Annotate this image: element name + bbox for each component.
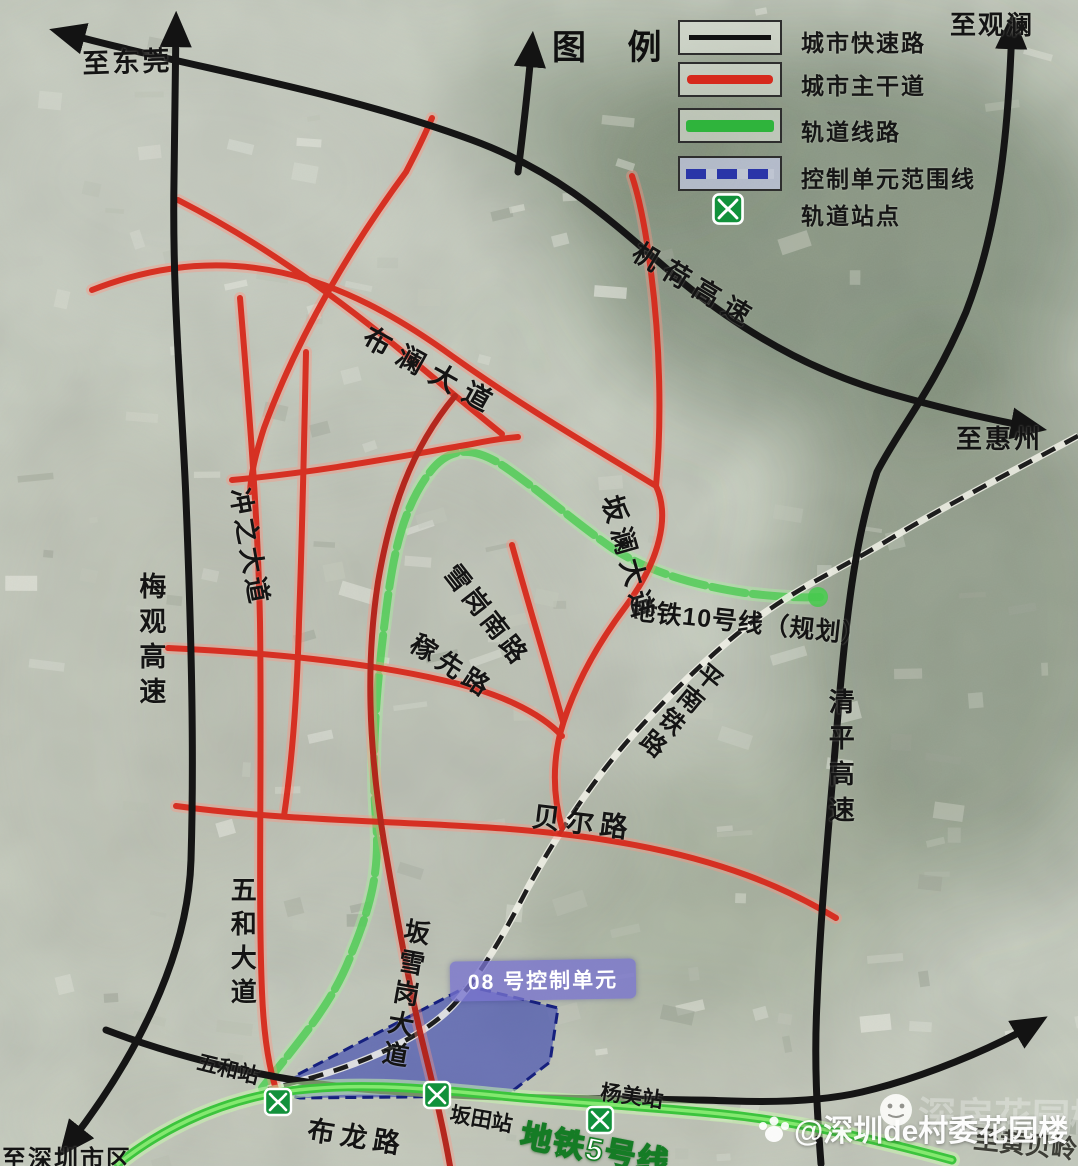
dest-guanlan: 至观澜 xyxy=(950,12,1034,39)
label-qingping-expressway: 清平高速 xyxy=(826,688,853,832)
legend-swatch-control-boundary xyxy=(678,156,782,191)
legend-label-arterial: 城市主干道 xyxy=(801,67,926,101)
legend-station-icon xyxy=(713,194,742,223)
control-unit-08-label: 08 号控制单元 xyxy=(450,958,637,1001)
paw-icon xyxy=(756,1112,792,1146)
control-boundary-sample xyxy=(686,169,774,179)
legend-title: 图 例 xyxy=(552,20,677,69)
satellite-planning-map: 图 例 城市快速路 城市主干道 轨道线路 控制单元范围线 轨道站点 至东莞 至观… xyxy=(0,0,1078,1166)
smiley-icon xyxy=(876,1090,916,1130)
rail-line-sample xyxy=(686,120,774,132)
arterial-line-sample xyxy=(687,75,773,84)
station-icon-line5 xyxy=(587,1107,613,1133)
label-meiguan-expressway: 梅观高速 xyxy=(136,572,164,712)
legend-label-rail: 轨道线路 xyxy=(801,113,901,147)
legend-swatch-rail xyxy=(678,108,782,143)
legend-label-control-boundary: 控制单元范围线 xyxy=(801,160,976,194)
watermark-faint: 深房花园楼 xyxy=(918,1084,1078,1142)
legend-label-station: 轨道站点 xyxy=(801,197,901,231)
legend-swatch-arterial xyxy=(678,62,782,97)
station-icon-bantian xyxy=(424,1082,450,1108)
expressway-line-sample xyxy=(689,35,771,40)
legend-label-expressway: 城市快速路 xyxy=(801,24,926,58)
dest-huizhou: 至惠州 xyxy=(956,426,1043,453)
label-wuhe-avenue: 五和大道 xyxy=(228,876,255,1012)
dest-dongguan: 至东莞 xyxy=(82,47,173,78)
dest-shenzhen-downtown: 至深圳市区 xyxy=(2,1147,132,1166)
station-icon-wuhe xyxy=(265,1089,291,1115)
legend-swatch-expressway xyxy=(678,20,782,55)
